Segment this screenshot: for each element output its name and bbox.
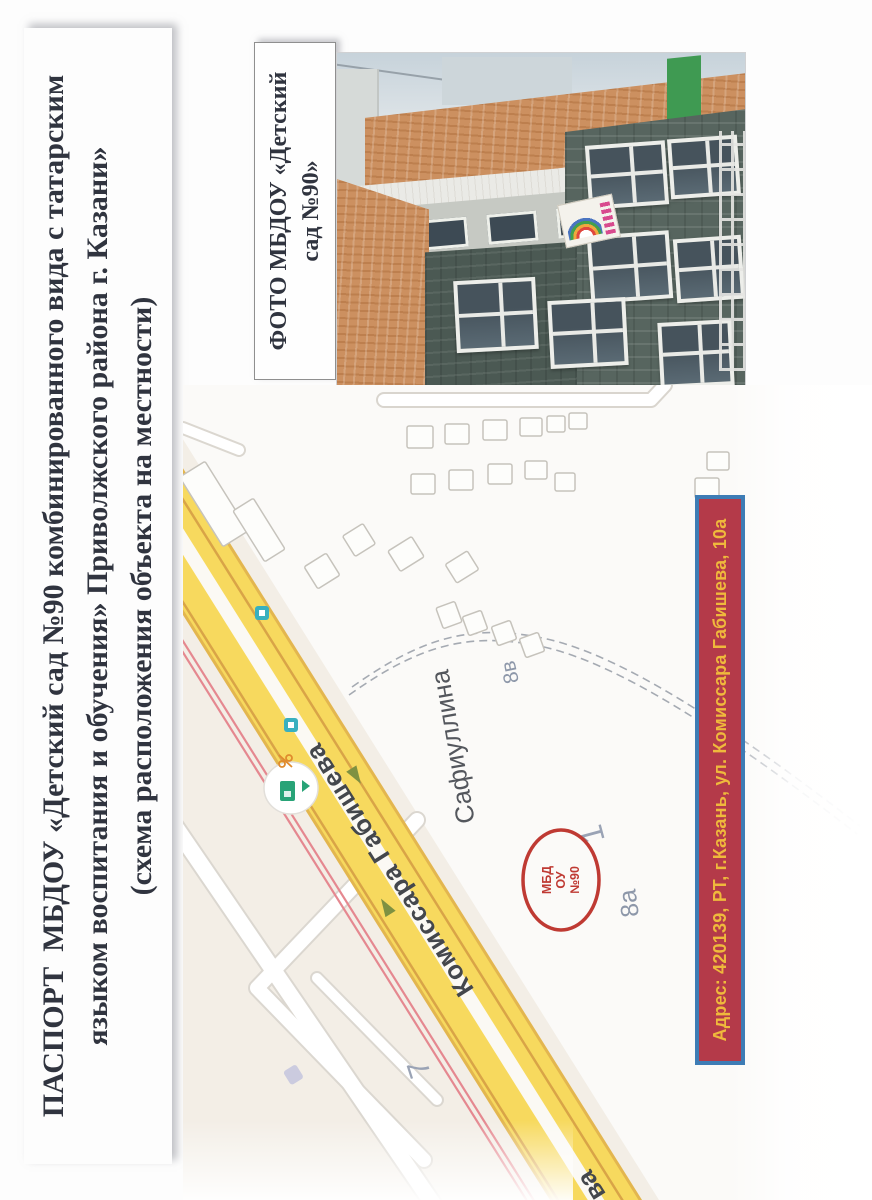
brick-facade-corner — [337, 179, 429, 397]
title-line-1: ПАСПОРТ МБДОУ «Детский сад №90 комбиниро… — [32, 28, 76, 1164]
address-banner: Адрес: 420139, РТ, г.Казань, ул. Комисса… — [695, 495, 745, 1065]
window — [587, 230, 674, 304]
marker-line-1: МБД — [540, 866, 554, 894]
rainbow-icon — [563, 204, 602, 240]
marker-line-3: №90 — [568, 866, 582, 894]
building-photo — [336, 52, 746, 398]
location-map: Комиссара Габишева ва — [183, 385, 872, 1200]
map-svg: Комиссара Габишева ва — [183, 385, 872, 1200]
house-label-8a: 8а — [613, 888, 645, 920]
photo-scene — [337, 52, 746, 397]
window — [486, 211, 538, 245]
title-line-3: (схема расположения объекта на местности… — [120, 28, 164, 1164]
photo-caption: ФОТО МБДОУ «Детский сад №90» — [263, 57, 328, 365]
address-text: Адрес: 420139, РТ, г.Казань, ул. Комисса… — [710, 519, 731, 1042]
title-line-2: языком воспитания и обучения» Приволжско… — [76, 28, 120, 1164]
house-label-8v: 8в — [497, 659, 524, 686]
map-edge-fade-left — [183, 1120, 573, 1200]
window — [453, 277, 539, 353]
window — [547, 297, 628, 369]
bus-stop-icon — [255, 606, 269, 620]
scaffolding — [719, 131, 746, 371]
photo-caption-box: ФОТО МБДОУ «Детский сад №90» — [254, 42, 336, 380]
bus-stop-icon — [284, 718, 298, 732]
page-title: ПАСПОРТ МБДОУ «Детский сад №90 комбиниро… — [24, 28, 172, 1164]
marker-line-2: ОУ — [554, 871, 568, 888]
landscape-sheet: ПАСПОРТ МБДОУ «Детский сад №90 комбиниро… — [0, 0, 872, 1200]
scanned-page: ПАСПОРТ МБДОУ «Детский сад №90 комбиниро… — [0, 0, 872, 1200]
map-edge-fade-bottom — [729, 385, 872, 1200]
